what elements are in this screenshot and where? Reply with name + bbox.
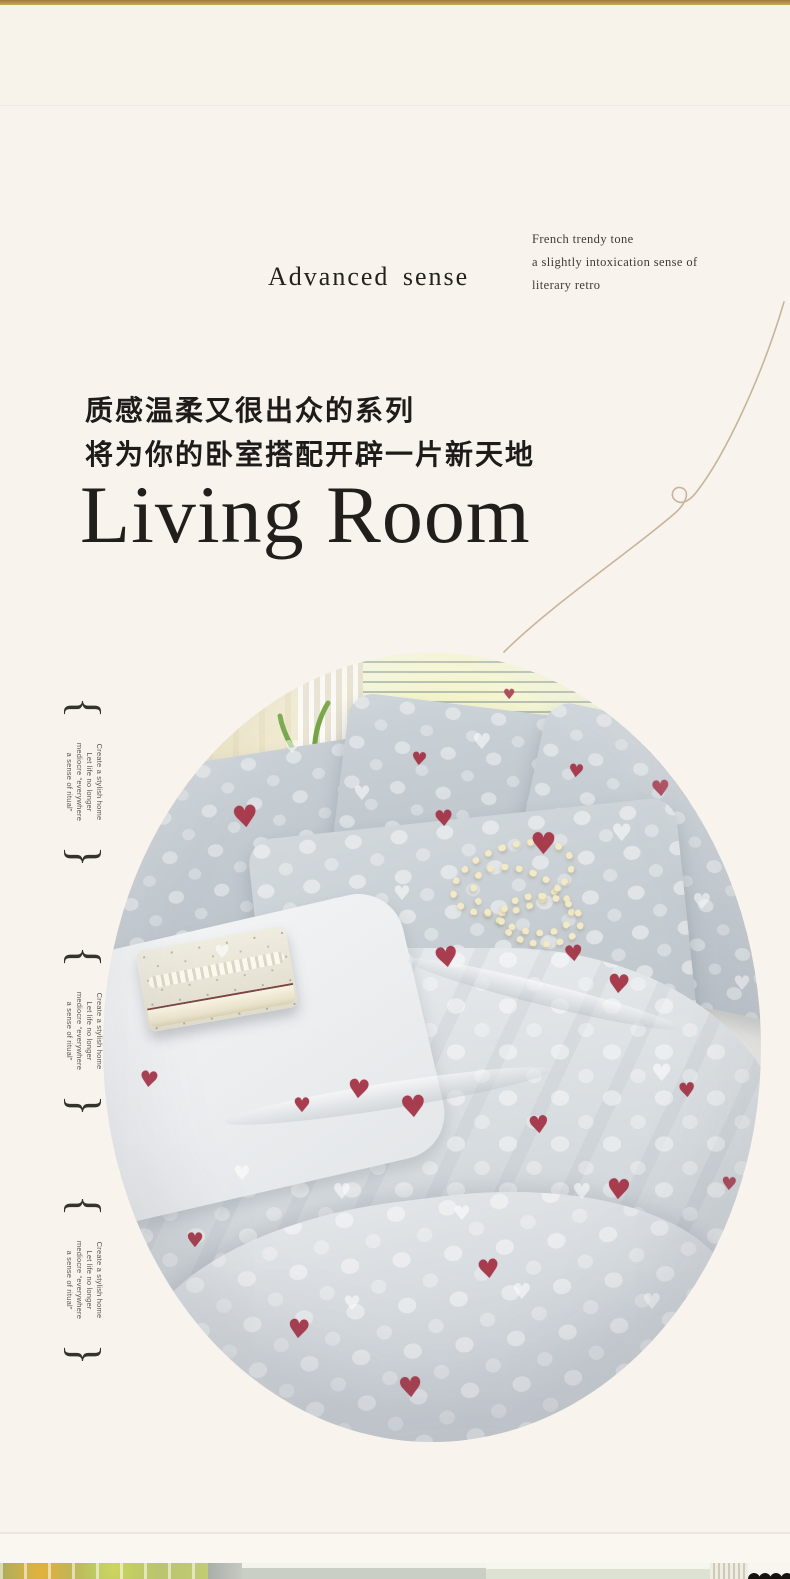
side-note-line: a sense of ritual”: [64, 726, 74, 838]
section-seam-top: [0, 105, 790, 106]
foliage-window-sliver: [0, 1563, 208, 1579]
side-note-line: Create a stylish home: [94, 1224, 104, 1336]
decorative-thread-curve: [478, 288, 790, 672]
open-brace-ornament: {: [65, 946, 102, 967]
white-margin-sliver: [748, 1563, 790, 1579]
side-note-line: Create a stylish home: [94, 726, 104, 838]
close-brace-ornament: }: [65, 1095, 102, 1116]
side-note-line: mediocre “everywhere: [74, 975, 84, 1087]
open-brace-ornament: {: [65, 697, 102, 718]
side-note-line: Create a stylish home: [94, 975, 104, 1087]
section-title: Living Room: [80, 470, 531, 560]
side-note-text: Create a stylish home Let life no longer…: [64, 726, 104, 838]
side-note-text: Create a stylish home Let life no longer…: [64, 975, 104, 1087]
side-note-2: { Create a stylish home Let life no long…: [62, 946, 106, 1116]
side-note-line: a sense of ritual”: [64, 975, 74, 1087]
headline-cn-line2: 将为你的卧室搭配开辟一片新天地: [85, 433, 535, 473]
hero-photo-ellipse: ♥♥♥♥♥♥♥♥♥♥♥♥♥♥♥♥♥♥♥♥♥♥♥♥♥♥♥♥♥♥♥♥♥♥♥♥♥♥♥♥…: [103, 653, 761, 1442]
scallop-decoration: [781, 1573, 790, 1579]
open-brace-ornament: {: [65, 1195, 102, 1216]
side-note-text: Create a stylish home Let life no longer…: [64, 1224, 104, 1336]
side-note-line: mediocre “everywhere: [74, 1224, 84, 1336]
side-note-line: Let life no longer: [84, 1224, 94, 1336]
tagline-line-2: a slightly intoxication sense of: [532, 251, 722, 274]
upper-cream-block: [0, 5, 790, 105]
next-section-photo-sliver: [0, 1563, 790, 1579]
tagline-line-1: French trendy tone: [532, 228, 722, 251]
photo-vignette: [103, 653, 761, 1442]
close-brace-ornament: }: [65, 846, 102, 867]
side-note-line: Let life no longer: [84, 726, 94, 838]
side-note-1: { Create a stylish home Let life no long…: [62, 697, 106, 867]
striped-curtain-sliver: [710, 1563, 748, 1579]
side-note-line: a sense of ritual”: [64, 1224, 74, 1336]
blinds-sliver-right: [486, 1563, 710, 1579]
white-heart-motif: ♥: [714, 824, 730, 842]
headline-cn-line1: 质感温柔又很出众的系列: [85, 389, 415, 429]
lower-cream-block: [0, 1534, 790, 1563]
brand-wordmark: Advanced sense: [268, 262, 469, 292]
promo-page: Advanced sense French trendy tone a slig…: [0, 0, 790, 1579]
side-note-line: Let life no longer: [84, 975, 94, 1087]
blinds-sliver-left: [242, 1563, 486, 1579]
tagline-block: French trendy tone a slightly intoxicati…: [532, 228, 722, 297]
side-note-3: { Create a stylish home Let life no long…: [62, 1195, 106, 1365]
frame-bar-sliver: [208, 1563, 242, 1579]
side-note-line: mediocre “everywhere: [74, 726, 84, 838]
close-brace-ornament: }: [65, 1344, 102, 1365]
red-heart-motif: ♥: [149, 786, 165, 803]
red-heart-motif: ♥: [704, 737, 718, 753]
